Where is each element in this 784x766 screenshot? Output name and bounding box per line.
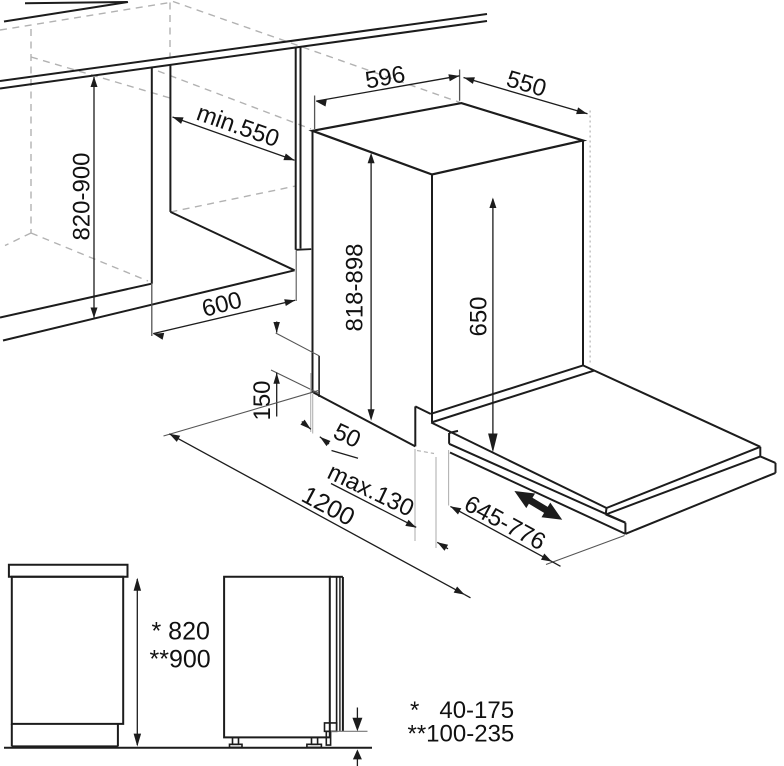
svg-text:**100-235: **100-235	[408, 720, 515, 747]
svg-text:* 820: * 820	[152, 618, 210, 646]
svg-text:150: 150	[249, 380, 276, 420]
svg-text:650: 650	[465, 296, 492, 336]
svg-text:**900: **900	[150, 646, 211, 674]
svg-text:818-898: 818-898	[342, 243, 369, 331]
svg-text:820-900: 820-900	[68, 152, 95, 240]
